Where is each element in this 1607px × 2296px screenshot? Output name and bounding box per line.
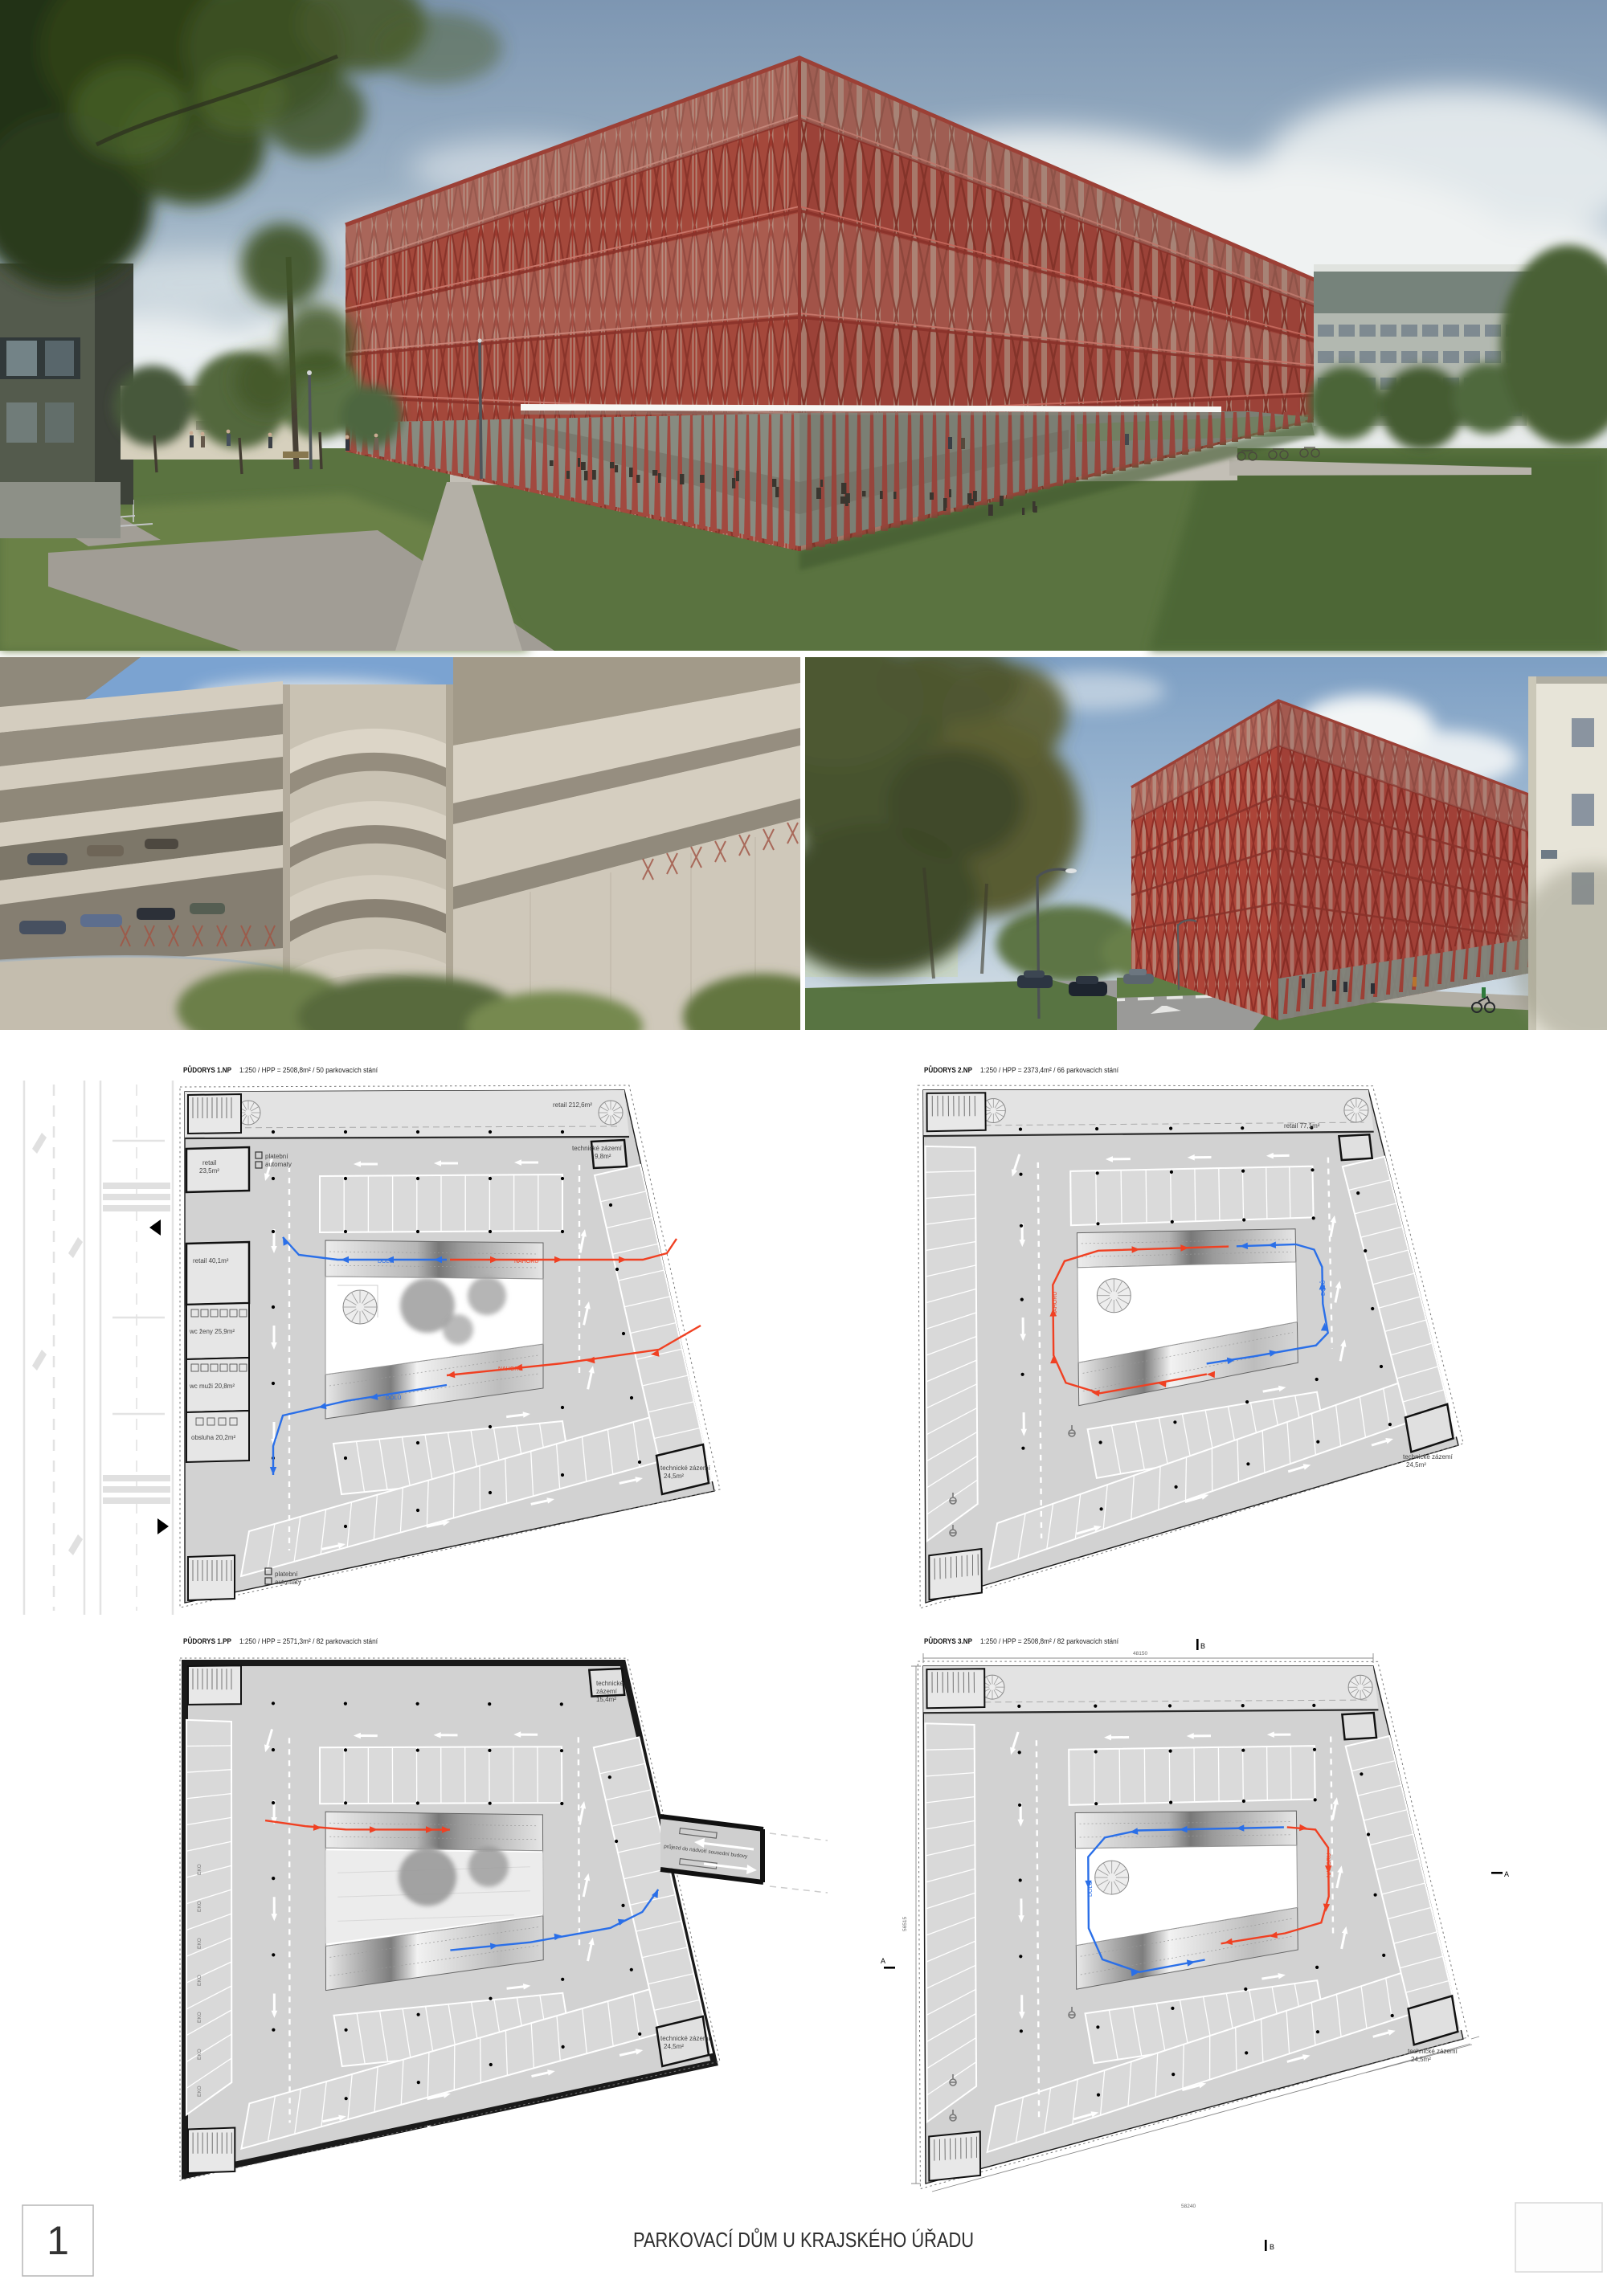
svg-text:retail 40,1m²: retail 40,1m² — [193, 1257, 229, 1264]
svg-text:technické zázemí: technické zázemí — [660, 1465, 711, 1472]
svg-text:obsluha 20,2m²: obsluha 20,2m² — [191, 1434, 235, 1441]
svg-text:platební: platební — [265, 1153, 288, 1160]
svg-text:DOLŮ: DOLŮ — [1319, 1281, 1327, 1296]
svg-text:A: A — [881, 1957, 885, 1965]
svg-text:retail 77,1m²: retail 77,1m² — [1284, 1122, 1320, 1130]
svg-text:1:250 / HPP = 2508,8m² / 82 pa: 1:250 / HPP = 2508,8m² / 82 parkovacích … — [980, 1637, 1118, 1646]
svg-text:NAHORU: NAHORU — [514, 1259, 538, 1264]
svg-text:24,5m²: 24,5m² — [664, 2043, 684, 2050]
svg-text:PŮDORYS 3.NP: PŮDORYS 3.NP — [924, 1636, 973, 1646]
svg-text:technické zázemí: technické zázemí — [1403, 1453, 1454, 1461]
svg-text:DOLŮ: DOLŮ — [1086, 1881, 1094, 1897]
svg-text:1:250 / HPP = 2373,4m² / 66 pa: 1:250 / HPP = 2373,4m² / 66 parkovacích … — [980, 1066, 1118, 1075]
svg-text:9,8m²: 9,8m² — [595, 1153, 611, 1160]
svg-text:EKO: EKO — [197, 1901, 202, 1912]
svg-text:EKO: EKO — [197, 1864, 202, 1875]
svg-text:B: B — [1270, 2243, 1274, 2251]
svg-text:15,4m²: 15,4m² — [596, 1696, 616, 1703]
svg-text:1:250 / HPP = 2571,3m² / 82 pa: 1:250 / HPP = 2571,3m² / 82 parkovacích … — [239, 1637, 378, 1646]
svg-text:NAHORU: NAHORU — [1053, 1292, 1058, 1316]
svg-text:58240: 58240 — [1181, 2204, 1196, 2209]
svg-text:technické zázemí: technické zázemí — [660, 2035, 711, 2042]
svg-text:PŮDORYS 1.NP: PŮDORYS 1.NP — [183, 1065, 232, 1075]
svg-text:wc ženy 25,9m²: wc ženy 25,9m² — [189, 1328, 235, 1335]
svg-text:56515: 56515 — [902, 1917, 908, 1931]
svg-text:EKO: EKO — [197, 2012, 202, 2023]
svg-text:24,5m²: 24,5m² — [1406, 1461, 1426, 1469]
svg-text:DOLŮ: DOLŮ — [378, 1257, 393, 1264]
svg-text:NAHORU: NAHORU — [1327, 1853, 1332, 1877]
svg-text:technické: technické — [596, 1680, 624, 1687]
svg-text:automaty: automaty — [275, 1579, 301, 1586]
svg-text:A: A — [1504, 1870, 1509, 1878]
svg-text:technické zázemí: technické zázemí — [572, 1145, 623, 1152]
svg-text:wc muži 20,8m²: wc muži 20,8m² — [189, 1383, 235, 1390]
svg-text:EKO: EKO — [197, 2049, 202, 2060]
svg-text:EKO: EKO — [197, 2086, 202, 2097]
svg-text:PARKOVACÍ DŮM U KRAJSKÉHO ÚŘAD: PARKOVACÍ DŮM U KRAJSKÉHO ÚŘADU — [633, 2227, 974, 2252]
svg-text:24,5m²: 24,5m² — [664, 1473, 684, 1480]
svg-text:1:250 / HPP = 2508,8m² / 50 pa: 1:250 / HPP = 2508,8m² / 50 parkovacích … — [239, 1066, 378, 1075]
svg-text:DOLŮ: DOLŮ — [386, 1394, 401, 1401]
svg-text:technické zázemí: technické zázemí — [1408, 2048, 1458, 2055]
svg-text:PŮDORYS 1.PP: PŮDORYS 1.PP — [183, 1636, 232, 1646]
svg-text:retail: retail — [202, 1159, 217, 1166]
svg-text:zázemí: zázemí — [596, 1688, 618, 1695]
svg-text:23,5m²: 23,5m² — [199, 1167, 219, 1175]
svg-text:NAHORU: NAHORU — [498, 1367, 522, 1372]
svg-text:EKO: EKO — [197, 1938, 202, 1949]
svg-text:48150: 48150 — [1133, 1651, 1147, 1657]
svg-text:automaty: automaty — [265, 1161, 292, 1168]
svg-text:platební: platební — [275, 1571, 298, 1578]
svg-text:24,5m²: 24,5m² — [1411, 2056, 1431, 2063]
svg-text:B: B — [1200, 1642, 1205, 1650]
svg-text:EKO: EKO — [197, 1975, 202, 1986]
svg-text:PŮDORYS 2.NP: PŮDORYS 2.NP — [924, 1065, 973, 1075]
svg-text:1: 1 — [47, 2218, 69, 2263]
svg-text:retail 212,6m²: retail 212,6m² — [553, 1101, 592, 1109]
